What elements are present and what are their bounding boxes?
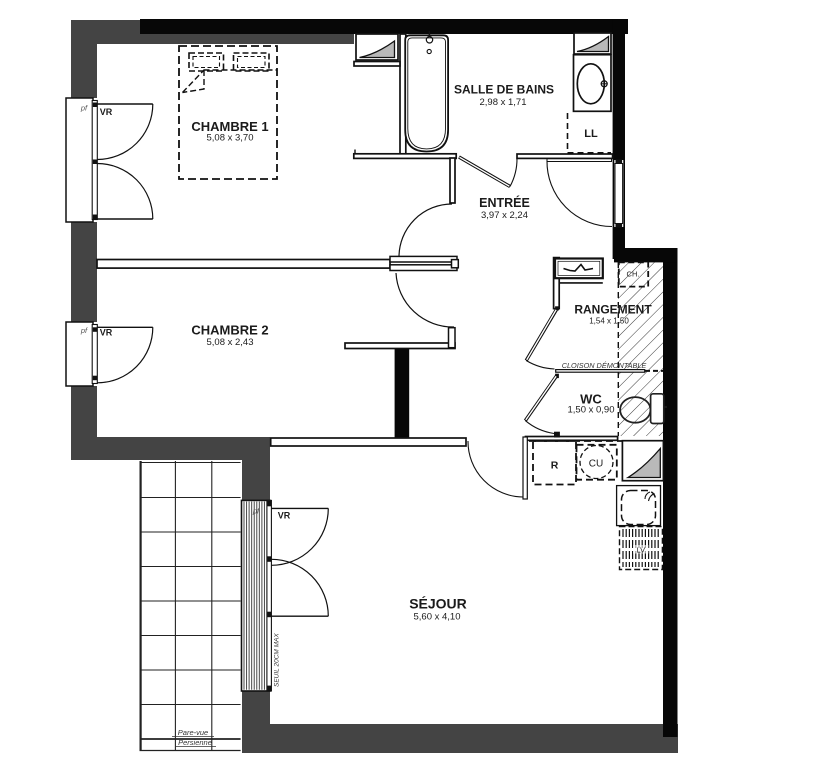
svg-text:VR: VR	[278, 511, 291, 521]
svg-text:CHAMBRE 2: CHAMBRE 2	[191, 323, 268, 338]
svg-text:CU: CU	[589, 459, 603, 470]
svg-text:SEUIL 20CM MAX: SEUIL 20CM MAX	[274, 633, 281, 687]
svg-text:SÉJOUR: SÉJOUR	[409, 596, 467, 612]
svg-text:CLOISON DÉMONTABLE: CLOISON DÉMONTABLE	[562, 361, 647, 370]
svg-text:5,08 x 2,43: 5,08 x 2,43	[206, 337, 253, 348]
svg-text:Persienne: Persienne	[178, 738, 212, 747]
svg-text:pf: pf	[252, 507, 260, 516]
svg-text:SALLE DE BAINS: SALLE DE BAINS	[454, 83, 554, 97]
svg-text:pf: pf	[80, 104, 88, 113]
svg-text:pf: pf	[80, 326, 88, 335]
svg-text:ENTRÉE: ENTRÉE	[479, 195, 530, 210]
svg-text:R: R	[551, 460, 559, 472]
svg-text:Pare-vue: Pare-vue	[178, 728, 208, 737]
svg-text:2,98 x 1,71: 2,98 x 1,71	[479, 97, 526, 108]
svg-text:LV: LV	[636, 546, 645, 555]
svg-text:3,97 x 2,24: 3,97 x 2,24	[481, 210, 528, 221]
svg-text:VR: VR	[100, 107, 113, 117]
svg-text:1,50 x 0,90: 1,50 x 0,90	[567, 405, 614, 416]
svg-text:RANGEMENT: RANGEMENT	[574, 303, 652, 317]
svg-text:VR: VR	[100, 327, 113, 337]
svg-text:5,08 x 3,70: 5,08 x 3,70	[206, 133, 253, 144]
svg-text:LL: LL	[584, 128, 598, 140]
svg-text:CH.: CH.	[627, 270, 640, 279]
svg-text:1,54 x 1,50: 1,54 x 1,50	[589, 317, 629, 326]
svg-text:5,60 x 4,10: 5,60 x 4,10	[413, 612, 460, 623]
